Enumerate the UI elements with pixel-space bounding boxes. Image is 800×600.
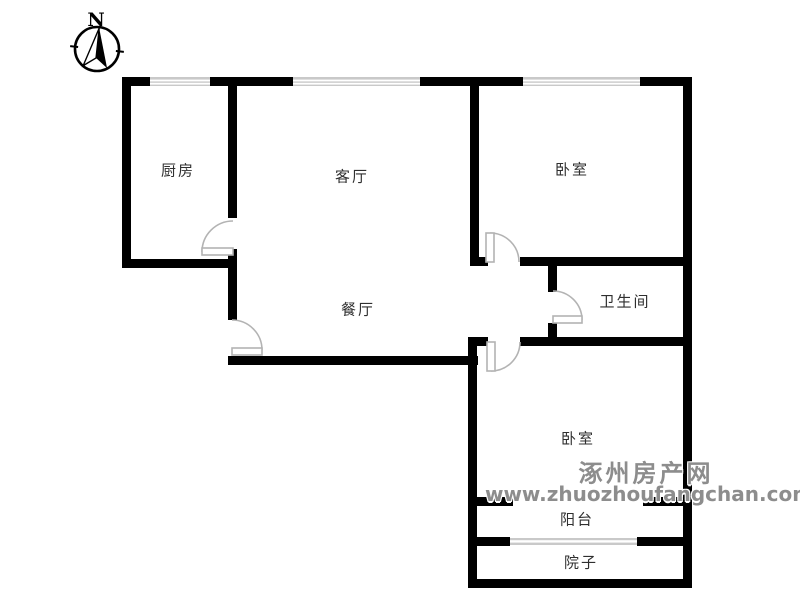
- windows: [150, 77, 640, 545]
- wall-segment: [122, 77, 131, 268]
- wall-segment: [468, 337, 477, 588]
- wall-segment: [228, 356, 478, 365]
- bedroom-window: [523, 77, 640, 86]
- kitchen-door-leaf: [202, 248, 233, 255]
- dining-door-arc: [232, 320, 262, 350]
- kitchen-window: [150, 77, 210, 86]
- wall-segment: [683, 77, 692, 588]
- room-label-bedroom-top: 卧室: [555, 159, 589, 180]
- room-label-yard: 院子: [564, 552, 598, 573]
- watermark-site-url: www.zhuozhoufangchan.com: [485, 482, 800, 506]
- room-label-balcony: 阳台: [560, 509, 594, 530]
- wall-segment: [228, 268, 237, 320]
- walls: [122, 77, 692, 588]
- wall-segment: [477, 537, 510, 546]
- wall-segment: [520, 257, 692, 266]
- floor-plan: N 厨房 客厅 卧室 餐厅 卫生间 卧室 阳台 院子 涿州房产网 www.zhu…: [0, 0, 800, 600]
- room-label-living-room: 客厅: [335, 166, 369, 187]
- bedroom-bottom-door-leaf: [487, 342, 495, 371]
- wall-segment: [210, 77, 293, 86]
- floor-plan-drawing: N: [0, 0, 800, 600]
- room-label-kitchen: 厨房: [161, 160, 195, 181]
- room-label-dining-room: 餐厅: [341, 299, 375, 320]
- wall-segment: [122, 259, 237, 268]
- bedroom-top-door-leaf: [486, 233, 494, 262]
- wall-segment: [470, 77, 479, 266]
- dining-door-leaf: [232, 348, 262, 355]
- doors: [202, 221, 582, 371]
- wall-segment: [520, 337, 683, 346]
- wall-segment: [637, 537, 683, 546]
- room-label-bedroom-bottom: 卧室: [561, 428, 595, 449]
- room-label-bathroom: 卫生间: [599, 291, 650, 312]
- compass-icon: N: [68, 9, 126, 71]
- wall-segment: [228, 77, 237, 218]
- bathroom-door-leaf: [553, 316, 582, 323]
- wall-segment: [548, 266, 557, 292]
- balcony-yard-window: [510, 538, 637, 545]
- living-room-window: [293, 77, 420, 86]
- wall-segment: [468, 579, 692, 588]
- compass-north-label: N: [87, 9, 104, 31]
